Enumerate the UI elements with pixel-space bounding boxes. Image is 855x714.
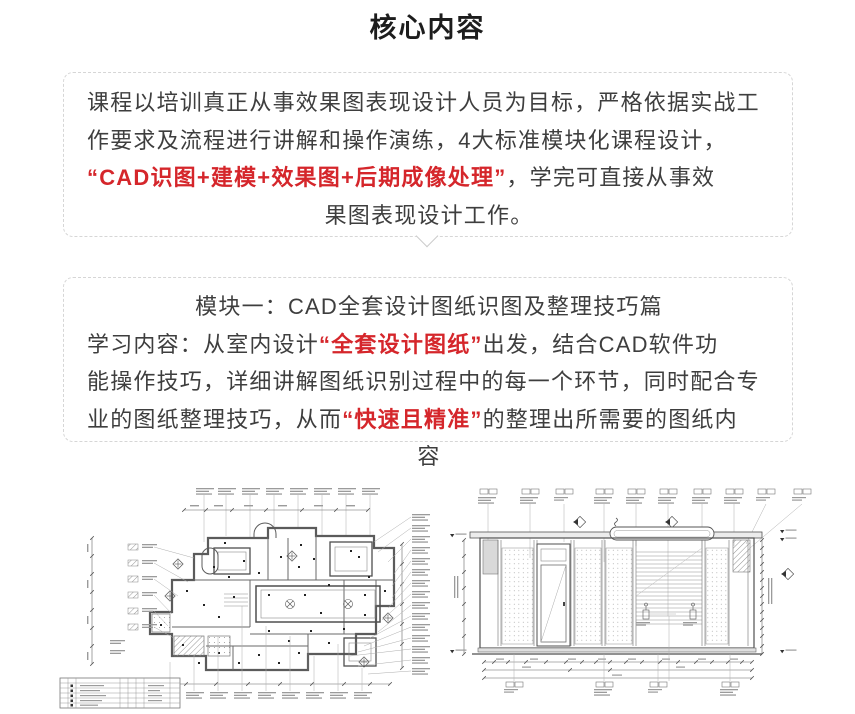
elevation-figure — [450, 486, 850, 698]
page-title: 核心内容 — [0, 6, 855, 45]
module-highlight-1: “全套设计图纸” — [319, 332, 483, 357]
module-line-2: 学习内容：从室内设计“全套设计图纸”出发，结合CAD软件功 — [87, 326, 771, 364]
plan-legend-table — [60, 678, 180, 708]
module-line-3: 能操作技巧，详细讲解图纸识别过程中的每一个环节，同时配合专 — [87, 363, 771, 401]
ceiling-plan-figure — [58, 486, 446, 710]
module-line-5: 容 — [87, 438, 771, 476]
elevation-drawing — [450, 486, 850, 698]
intro-line-3: “CAD识图+建模+效果图+后期成像处理”，学完可直接从事效 — [87, 159, 771, 197]
page: 核心内容 课程以培训真正从事效果图表现设计人员为目标，严格依据实战工 作要求及流… — [0, 0, 855, 714]
module-heading: 模块一：CAD全套设计图纸识图及整理技巧篇 — [87, 288, 771, 326]
intro-box: 课程以培训真正从事效果图表现设计人员为目标，严格依据实战工 作要求及流程进行讲解… — [87, 84, 771, 234]
intro-highlight: “CAD识图+建模+效果图+后期成像处理” — [87, 165, 506, 190]
module-highlight-2: “快速且精准” — [342, 407, 482, 432]
module-box: 模块一：CAD全套设计图纸识图及整理技巧篇 学习内容：从室内设计“全套设计图纸”… — [87, 288, 771, 476]
intro-line-1: 课程以培训真正从事效果图表现设计人员为目标，严格依据实战工 — [87, 84, 771, 122]
intro-line-4: 果图表现设计工作。 — [87, 197, 771, 235]
ceiling-plan-drawing — [58, 486, 446, 710]
module-line-4: 业的图纸整理技巧，从而“快速且精准”的整理出所需要的图纸内 — [87, 401, 771, 439]
intro-line-2: 作要求及流程进行讲解和操作演练，4大标准模块化课程设计， — [87, 122, 771, 160]
